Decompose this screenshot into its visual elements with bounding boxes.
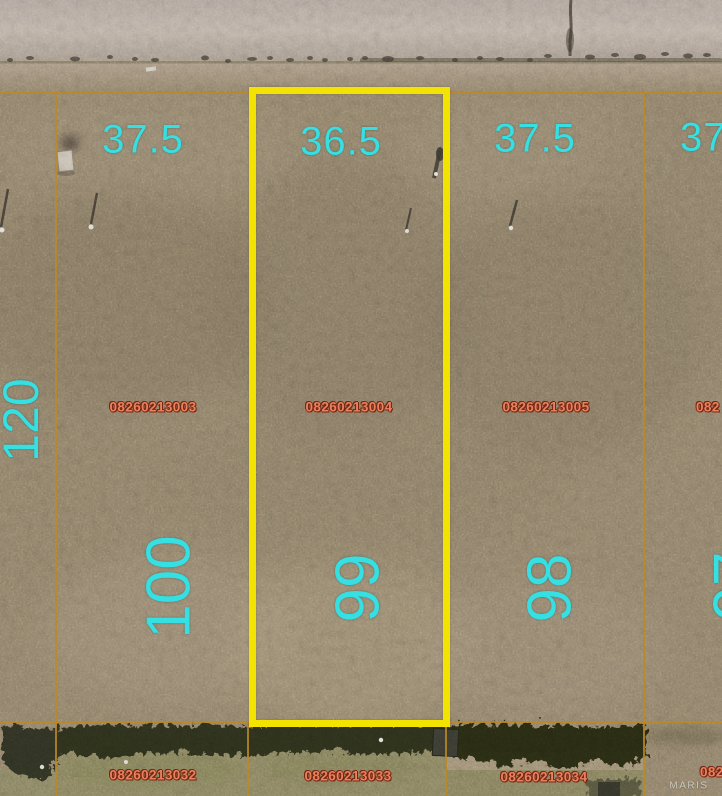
plat-map[interactable]: 37.5 36.5 37.5 37 120 100 99 98 97 08260…: [0, 0, 722, 796]
parcel-id-label-08260213003: 08260213003: [110, 400, 197, 415]
frontage-label-lot-98: 37.5: [494, 117, 576, 162]
parcel-line-back-row-1: [247, 721, 249, 796]
depth-label-120: 120: [0, 378, 50, 461]
parcel-line-left: [55, 92, 57, 796]
lot-number-label-98: 98: [515, 554, 586, 623]
parcel-id-label-08260213004: 08260213004: [306, 400, 393, 415]
parcel-id-label-partial-front: 082: [696, 400, 720, 415]
lot-number-label-100: 100: [134, 535, 205, 638]
parcel-id-label-08260213032: 08260213032: [110, 768, 197, 783]
parcel-id-label-partial-back: 082: [700, 765, 722, 780]
parcel-id-label-08260213034: 08260213034: [501, 770, 588, 785]
lot-number-label-97-partial: 97: [701, 552, 722, 621]
parcel-line-back-row-2: [445, 721, 447, 796]
lot-number-label-99: 99: [323, 554, 394, 623]
parcel-line-right: [643, 92, 645, 796]
frontage-label-lot-99: 36.5: [300, 120, 382, 165]
parcel-id-label-08260213033: 08260213033: [305, 769, 392, 784]
frontage-label-lot-97-partial: 37: [680, 116, 722, 161]
frontage-label-lot-100: 37.5: [102, 118, 184, 163]
parcel-id-label-08260213005: 08260213005: [503, 400, 590, 415]
maris-watermark: MARIS: [669, 781, 708, 792]
